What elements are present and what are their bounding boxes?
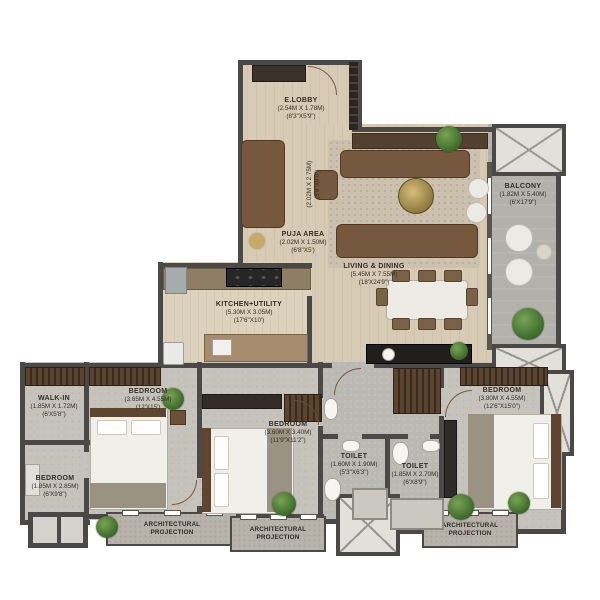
- duvet: [90, 483, 166, 508]
- master-tv-unit: [444, 420, 457, 498]
- label-bedroom-master: BEDROOM (3.80M X 4.55M) (12'6"X15'0"): [446, 386, 558, 411]
- dining-chair: [392, 318, 410, 330]
- counter-plant: [450, 342, 468, 360]
- service-shaft-right: [61, 517, 83, 543]
- washing-machine: [163, 342, 184, 365]
- window-marker: [492, 510, 509, 516]
- balcony-chair-1: [505, 224, 533, 252]
- fridge: [165, 267, 187, 294]
- window-marker: [300, 514, 317, 520]
- toilet-common-shower: [352, 488, 388, 520]
- plant-bottom-4: [508, 492, 530, 514]
- label-toilet-common: TOILET (1.60M X 1.90M) (5'3"X6'3"): [321, 452, 387, 477]
- counter-basin: [382, 348, 395, 361]
- toilet-common-basin: [342, 440, 360, 452]
- armchair-white-2: [466, 202, 487, 223]
- wall-living-top: [352, 127, 492, 132]
- stove: [226, 268, 282, 287]
- pillow: [97, 420, 127, 435]
- pillow: [533, 463, 549, 499]
- pillow: [533, 423, 549, 459]
- label-kitchen: KITCHEN+UTILITY (5.30M X 3.05M) (17'6"X1…: [194, 300, 304, 325]
- shoe-shelf: [349, 62, 358, 130]
- label-walk-in: WALK-IN (1.85M X 1.72M) (6'X5'8"): [23, 394, 85, 419]
- corridor-basin: [324, 398, 338, 420]
- window-marker: [122, 510, 139, 516]
- bedroom-left-bed: [90, 408, 168, 510]
- dining-chair: [444, 318, 462, 330]
- arch-projection-mid: ARCHITECTURAL PROJECTION: [230, 516, 326, 552]
- toilet-common-wc: [324, 478, 341, 501]
- balcony-chair-2: [505, 258, 533, 286]
- pillow: [214, 473, 229, 507]
- label-puja: PUJA AREA (2.02M X 1.50M) (6'8"X5'): [256, 230, 350, 255]
- label-balcony: BALCONY (1.82M X 5.40M) (6'X17'9"): [492, 182, 554, 207]
- duct-top-right: [492, 124, 566, 176]
- balcony-window-3: [488, 298, 491, 334]
- wall-walkin-compact-divider: [20, 440, 90, 445]
- tv-console: [352, 133, 488, 149]
- living-plant: [436, 126, 462, 152]
- floor-plan: ARCHITECTURAL PROJECTION ARCHITECTURAL P…: [0, 0, 600, 600]
- arch-projection-label: ARCHITECTURAL PROJECTION: [129, 521, 215, 538]
- island-sink: [212, 339, 232, 356]
- label-living-dining: LIVING & DINING (5.45M X 7.55M) (18'X24'…: [326, 262, 422, 287]
- service-shaft-left: [33, 517, 57, 543]
- window-marker: [240, 514, 257, 520]
- pillow: [214, 436, 229, 470]
- balcony-plant: [512, 308, 544, 340]
- label-toilet-master: TOILET (1.85M X 2.70M) (6'X8'9"): [387, 462, 443, 487]
- toilet-master-shower: [390, 498, 444, 530]
- pillow: [131, 420, 161, 435]
- label-bedroom-compact: BEDROOM (1.85M X 2.85M) (6'X9'8"): [22, 474, 88, 499]
- label-bedroom-left: BEDROOM (3.65M X 4.55M) (12'X15'): [98, 387, 198, 412]
- door-gap-toilet-common: [338, 434, 362, 439]
- dining-chair: [376, 288, 388, 306]
- nook-open-wardrobe: [393, 368, 441, 414]
- toilet-master-basin: [422, 440, 440, 452]
- entry-console-cabinet: [252, 65, 306, 82]
- door-gap-toilet-master: [408, 434, 430, 439]
- foyer-sofa: [241, 140, 285, 228]
- walkin-wardrobe: [25, 367, 85, 386]
- arch-projection-left: ARCHITECTURAL PROJECTION: [106, 512, 238, 546]
- arch-projection-label: ARCHITECTURAL PROJECTION: [238, 526, 318, 543]
- plant-bottom-2: [272, 492, 296, 516]
- label-bedroom-mid: BEDROOM (3.60M X 3.40M) (11'9"X11'2"): [248, 420, 328, 445]
- bedroom-mid-shelf: [202, 394, 282, 409]
- dining-chair: [466, 288, 478, 306]
- balcony-window-1: [488, 178, 491, 214]
- dining-chair: [418, 318, 436, 330]
- balcony-table: [536, 244, 552, 260]
- plant-bottom-1: [96, 516, 118, 538]
- label-foyer: (2.02M X 2.75M) (6'8"X9'0"): [306, 144, 322, 224]
- headboard: [202, 428, 211, 512]
- bedroom-left-wardrobe: [89, 367, 161, 386]
- plant-bottom-3: [448, 494, 474, 520]
- window-marker: [164, 510, 181, 516]
- dining-chair: [444, 270, 462, 282]
- headboard: [551, 414, 561, 508]
- master-wardrobe: [460, 367, 548, 386]
- sofa-top: [340, 150, 470, 178]
- coffee-table: [398, 178, 434, 214]
- duvet: [468, 414, 494, 508]
- sofa-bottom: [336, 224, 478, 258]
- label-elobby: E.LOBBY (2.54M X 1.78M) (8'3"X5'9"): [258, 96, 344, 121]
- balcony-window-2: [488, 238, 491, 274]
- armchair-white-1: [468, 178, 489, 199]
